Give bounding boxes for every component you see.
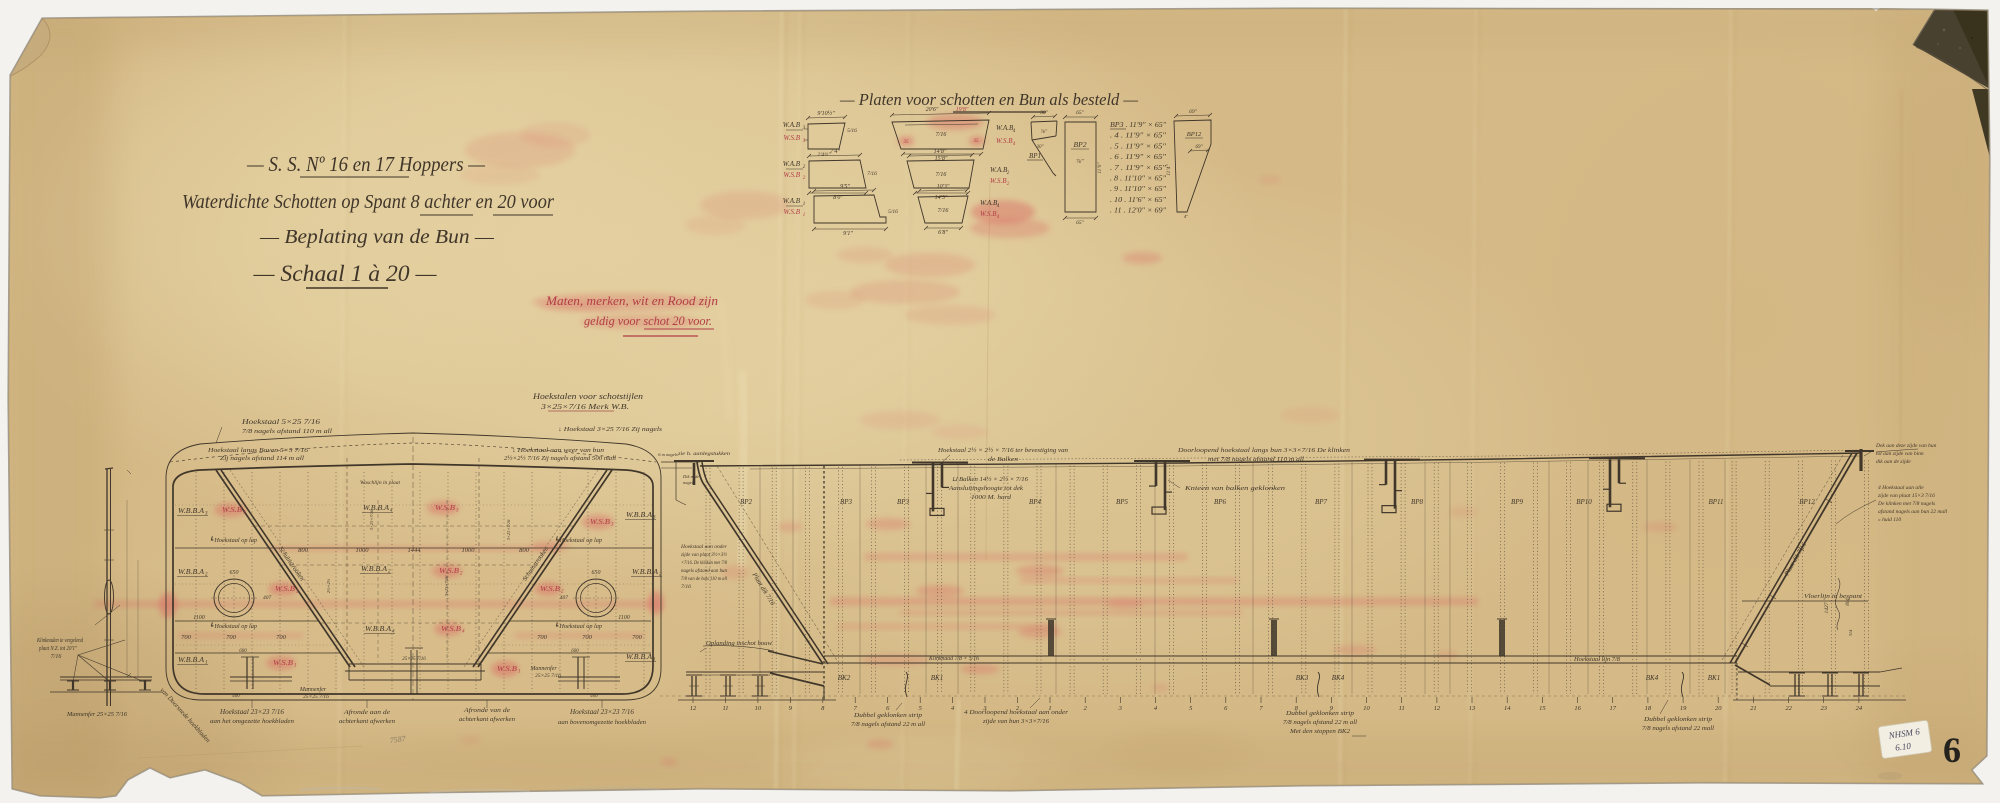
svg-text:afstand nagels aan bun 22 mall: afstand nagels aan bun 22 mall [1878,508,1948,515]
svg-text:zijde van plaat 15×3 7/16: zijde van plaat 15×3 7/16 [1877,493,1935,499]
svg-text:700: 700 [276,634,287,641]
svg-text:— Platen voor schotten en Bun: — Platen voor schotten en Bun als bestel… [839,90,1139,109]
svg-text:De klinken met 7/8 nagels: De klinken met 7/8 nagels [1877,501,1935,507]
svg-text:65": 65" [1076,220,1085,226]
svg-text:1000: 1000 [356,547,370,554]
svg-text:W.B.B.A: W.B.B.A [632,568,659,576]
svg-text:Met den stoppen BK2: Met den stoppen BK2 [1289,729,1350,735]
svg-text:BP7: BP7 [1315,498,1328,506]
svg-text:W.B.B.A: W.B.B.A [361,565,388,573]
svg-text:7/8 nagels afstand 22 mall: 7/8 nagels afstand 22 mall [1642,725,1714,732]
svg-text:3×25×7/16: 3×25×7/16 [444,575,449,597]
svg-text:314: 314 [1848,629,1853,637]
svg-text:1000: 1000 [462,547,476,554]
svg-text:⅞": ⅞" [1076,159,1084,165]
svg-text:W.S.B: W.S.B [996,137,1013,145]
svg-text:┗ Hoekstaal op lap: ┗ Hoekstaal op lap [209,536,257,544]
svg-text:700: 700 [632,634,643,641]
svg-text:2½×2½ 7/16 Zij nagels afstand: 2½×2½ 7/16 Zij nagels afstand 500 mall [504,455,616,462]
svg-text:35: 35 [974,139,980,144]
svg-text:5/16: 5/16 [847,128,857,134]
svg-text:geldig voor schot 20 voor.: geldig voor schot 20 voor. [584,313,712,328]
svg-text:1427: 1427 [1823,602,1830,613]
svg-text:. 8 . 11'10" × 65": . 8 . 11'10" × 65" [1110,174,1167,183]
svg-text:Dik m de: Dik m de [682,474,699,479]
svg-text:7/16: 7/16 [51,654,62,660]
svg-text:7/16: 7/16 [681,584,691,590]
svg-text:W.B.B.A: W.B.B.A [626,511,653,519]
svg-text:BP6: BP6 [1214,498,1227,506]
svg-text:4 Doorloopend hoekstaal aan on: 4 Doorloopend hoekstaal aan onder [964,709,1069,716]
svg-text:1100: 1100 [193,615,205,621]
svg-text:BP10: BP10 [1576,498,1592,506]
svg-text:⅞": ⅞" [1041,129,1048,135]
svg-text:11: 11 [1399,705,1405,712]
svg-text:1: 1 [803,213,806,218]
svg-text:20'6": 20'6" [926,107,939,113]
svg-text:W.B.B.A: W.B.B.A [178,507,205,515]
svg-text:Klinknaad 7/8 × 5/16: Klinknaad 7/8 × 5/16 [928,656,979,662]
svg-text:zijde van bun 3×3×7/16: zijde van bun 3×3×7/16 [982,719,1049,725]
svg-text:1: 1 [803,202,806,207]
svg-text:700: 700 [226,634,237,641]
svg-text:Vloerlijn in bespant: Vloerlijn in bespant [1804,593,1862,600]
svg-text:W.S.B: W.S.B [540,585,561,593]
svg-text:Mannenfer: Mannenfer [299,686,327,693]
svg-text:1: 1 [294,664,297,669]
svg-text:700: 700 [582,634,593,641]
svg-text:zie h. aanlegstukken: zie h. aanlegstukken [677,451,730,457]
svg-text:Afronde van de: Afronde van de [463,707,510,714]
svg-text:W.S.B: W.S.B [784,134,801,142]
svg-text:. 6 . 11'9" × 65": . 6 . 11'9" × 65" [1110,152,1167,161]
svg-text:7/8 nagels afstand 22 m all: 7/8 nagels afstand 22 m all [1283,719,1357,726]
svg-text:W.S.B: W.S.B [441,625,462,633]
svg-text:» huid 110: » huid 110 [1878,517,1901,523]
svg-text:20: 20 [1715,705,1722,712]
svg-text:Hoekstaal aan onder: Hoekstaal aan onder [680,544,728,550]
svg-text:10: 10 [755,705,762,712]
svg-text:9'10½": 9'10½" [817,110,835,117]
svg-text:BP8: BP8 [1411,498,1424,506]
svg-text:700: 700 [181,634,192,641]
svg-text:21: 21 [1750,705,1757,712]
svg-text:24: 24 [1856,705,1863,712]
svg-text:25×25 7/16: 25×25 7/16 [402,657,426,662]
svg-text:zijde van plaat 3½×3½: zijde van plaat 3½×3½ [680,551,727,558]
svg-text:Waschlijn in plaat: Waschlijn in plaat [360,480,400,486]
svg-text:14: 14 [1504,705,1511,712]
svg-text:┗ Hoekstaal op lap: ┗ Hoekstaal op lap [554,536,602,544]
svg-text:Dubbel geklonken strip: Dubbel geklonken strip [1643,716,1713,723]
svg-text:BP12: BP12 [1799,498,1815,506]
svg-text:W.A.B: W.A.B [996,124,1014,132]
svg-text:nagels afstand aan bun: nagels afstand aan bun [681,567,727,574]
svg-text:Waterdichte Schotten op Spant: Waterdichte Schotten op Spant 8 achter e… [182,191,554,213]
svg-text:12: 12 [690,705,697,712]
svg-text:Mannenfer 25×25 7/16: Mannenfer 25×25 7/16 [66,711,128,718]
svg-text:dik aan de zijde: dik aan de zijde [1876,459,1911,465]
svg-text:W.A.B: W.A.B [980,199,998,207]
svg-text:14'8": 14'8" [934,148,947,155]
svg-text:— Schaal 1 à 20 —: — Schaal 1 à 20 — [252,261,437,286]
svg-text:69": 69" [1189,109,1198,115]
svg-text:W.A.B: W.A.B [783,160,801,168]
svg-text:W.A.B: W.A.B [783,121,801,129]
svg-text:407: 407 [263,594,272,601]
svg-text:W.S.B: W.S.B [784,171,801,179]
svg-text:W.S.B: W.S.B [273,659,294,667]
svg-text:25×25 7/16: 25×25 7/16 [535,673,561,679]
svg-text:407: 407 [560,594,569,601]
svg-text:W.S.B: W.S.B [980,210,997,218]
svg-text:600: 600 [571,649,579,654]
svg-text:met 7/8 nagels afstand 110 m a: met 7/8 nagels afstand 110 m all [1208,456,1304,463]
svg-text:Maten, merken, wit en Rood zij: Maten, merken, wit en Rood zijn [545,293,718,308]
svg-text:19'8": 19'8" [956,107,969,113]
svg-text:achterkant afwerken: achterkant afwerken [339,718,395,725]
svg-text:BP5: BP5 [1116,498,1129,506]
svg-text:BK1: BK1 [931,674,943,682]
svg-text:W.S.B: W.S.B [497,665,518,673]
svg-text:Hoekstaal 2½ × 2½ × 7/16 ter b: Hoekstaal 2½ × 2½ × 7/16 ter bevestiging… [937,447,1068,454]
svg-text:BK1: BK1 [1708,674,1720,682]
svg-text:W.S.B: W.S.B [435,504,456,512]
svg-text:Hoekstaal 23×23 7/16: Hoekstaal 23×23 7/16 [569,708,635,716]
svg-text:11'4": 11'4" [1165,164,1172,176]
svg-text:W.S.B: W.S.B [590,518,611,526]
svg-text:9'5": 9'5" [840,184,850,190]
svg-text:BK3: BK3 [1296,674,1309,682]
svg-text:13: 13 [1469,705,1476,712]
svg-text:1: 1 [518,670,521,675]
svg-text:BP11: BP11 [1708,498,1723,506]
svg-text:. 7 . 11'9" × 65": . 7 . 11'9" × 65" [1110,163,1167,172]
svg-text:15'8": 15'8" [935,156,948,162]
svg-text:BP2: BP2 [740,498,753,506]
svg-text:7/8 van de huis 110 m all: 7/8 van de huis 110 m all [681,576,727,582]
svg-text:11: 11 [722,705,728,712]
svg-text:W.S.B: W.S.B [439,567,460,575]
svg-text:Knieen van balken geklonken: Knieen van balken geklonken [1184,485,1285,492]
svg-text:W.S.B: W.S.B [275,585,296,593]
svg-text:15: 15 [1539,705,1546,712]
svg-text:↓ Hoekstaal 3×25 7/16 Zij nag: ↓ Hoekstaal 3×25 7/16 Zij nagels [558,426,663,433]
svg-text:BP3 . 11'9" × 65": BP3 . 11'9" × 65" [1110,120,1167,129]
svg-text:2½×2½: 2½×2½ [326,578,331,593]
svg-text:1444: 1444 [408,547,422,554]
svg-text:↓ Hoekstaal aan weer van bun: ↓ Hoekstaal aan weer van bun [512,447,604,454]
svg-text:BP1: BP1 [1029,152,1041,160]
svg-text:. 11 . 12'0" × 69": . 11 . 12'0" × 69" [1110,206,1167,215]
svg-text:BP3: BP3 [840,498,853,506]
svg-text:6'8": 6'8" [938,230,948,236]
svg-text:700: 700 [537,634,548,641]
svg-text:W.S.B: W.S.B [784,208,801,216]
svg-text:de Balken: de Balken [988,456,1018,463]
svg-text:BP2: BP2 [1074,140,1087,149]
svg-text:— S. S. Nº 16 en 17 Hoppers —: — S. S. Nº 16 en 17 Hoppers — [246,152,485,176]
svg-text:┗ Hoekstaal op lap: ┗ Hoekstaal op lap [554,622,602,630]
svg-text:25×25 7/16: 25×25 7/16 [303,694,329,700]
svg-text:BP4: BP4 [1029,498,1042,506]
svg-text:. 5 . 11'9" × 65": . 5 . 11'9" × 65" [1110,141,1167,150]
svg-text:3×25×7/16: 3×25×7/16 [369,509,374,531]
svg-text:Mannenfer ·: Mannenfer · [529,665,560,672]
svg-text:— Beplating van de Bun —: — Beplating van de Bun — [259,226,494,248]
svg-text:4 Hoekstaal aan alle: 4 Hoekstaal aan alle [1878,484,1924,491]
svg-text:800: 800 [519,547,530,554]
svg-text:BP3: BP3 [897,498,910,506]
svg-text:30": 30" [1039,110,1049,116]
svg-text:W.B.B.A: W.B.B.A [363,504,390,512]
svg-text:Hoekstaal langs Boven 5×5 7/16: Hoekstaal langs Boven 5×5 7/16 [207,447,309,454]
svg-text:6: 6 [1943,730,1961,770]
svg-text:6 m nagels: 6 m nagels [658,452,678,457]
svg-text:BK4: BK4 [1646,674,1659,682]
svg-text:. 10 . 11'6" × 65": . 10 . 11'6" × 65" [1110,195,1167,204]
svg-text:plaat N.Z. tot 20'1": plaat N.Z. tot 20'1" [38,646,77,652]
svg-text:7'4": 7'4" [830,148,840,155]
svg-text:19: 19 [1680,705,1687,712]
svg-text:3: 3 [1118,705,1123,712]
svg-text:7/16: 7/16 [936,132,947,138]
svg-text:aan bovenomgezette hoekbladen: aan bovenomgezette hoekbladen [558,719,646,726]
svg-text:5/16: 5/16 [888,209,898,215]
svg-text:W.A.B: W.A.B [990,166,1008,174]
svg-text:1100: 1100 [618,615,630,621]
svg-text:800: 800 [298,547,309,554]
svg-text:Dubbel geklonken strip: Dubbel geklonken strip [853,712,923,719]
svg-text:7/16: 7/16 [938,208,949,214]
svg-text:1000 M. hard: 1000 M. hard [971,495,1012,501]
svg-text:9'1": 9'1" [843,231,853,237]
svg-text:W.A.B: W.A.B [783,197,801,205]
svg-text:18: 18 [1645,705,1652,712]
svg-text:400: 400 [590,694,598,699]
svg-text:achterkant afwerken: achterkant afwerken [459,716,515,723]
svg-text:Doorloopend hoekstaal langs bu: Doorloopend hoekstaal langs bun 3×3×7/16… [1177,447,1350,454]
svg-text:600: 600 [239,649,247,654]
svg-text:10'3": 10'3" [937,184,950,190]
svg-text:aan het omgezette hoekbladen: aan het omgezette hoekbladen [210,718,294,725]
svg-text:7/8 nagels afstand 110 m all: 7/8 nagels afstand 110 m all [242,428,332,435]
svg-text:23: 23 [1820,705,1827,712]
svg-text:4": 4" [1184,214,1188,219]
svg-text:BK2: BK2 [838,674,851,682]
svg-text:Dek aan deze zijde van bun: Dek aan deze zijde van bun [1875,443,1937,449]
svg-text:7/8 nagels afstand 22 m all: 7/8 nagels afstand 22 m all [851,721,925,728]
svg-text:7/16: 7/16 [867,171,877,177]
svg-text:804: 804 [1846,598,1851,606]
svg-text:Zij nagels afstand 114 m all: Zij nagels afstand 114 m all [220,455,304,462]
svg-text:69": 69" [1195,145,1203,150]
svg-text:Afronde aan de: Afronde aan de [343,709,390,716]
svg-text:35: 35 [904,140,910,145]
svg-text:11'0": 11'0" [1097,162,1103,174]
svg-text:650: 650 [592,570,601,576]
svg-text:. 4 . 11'9" × 65": . 4 . 11'9" × 65" [1110,131,1167,140]
svg-text:×7/16. De klinken met 7/8: ×7/16. De klinken met 7/8 [681,560,727,566]
svg-text:3×25×7/16 Merk W.B.: 3×25×7/16 Merk W.B. [540,402,629,411]
svg-text:12: 12 [1434,705,1441,712]
svg-text:650: 650 [230,570,239,576]
svg-text:. 9 . 11'10" × 65": . 9 . 11'10" × 65" [1110,184,1167,193]
svg-text:Dubbel geklonken strip: Dubbel geklonken strip [1285,710,1355,717]
svg-text:400: 400 [232,694,240,699]
svg-text:Hoekstaal 5×25 7/16: Hoekstaal 5×25 7/16 [241,418,321,426]
svg-text:30": 30" [1036,145,1044,150]
svg-text:Klinknaden te vergelend: Klinknaden te vergelend [36,638,84,644]
svg-text:BP9: BP9 [1511,498,1524,506]
svg-text:22: 22 [1785,705,1792,712]
svg-text:W.B.B.A: W.B.B.A [178,656,205,664]
svg-text:┗ Hoekstaal op lap: ┗ Hoekstaal op lap [209,622,257,630]
svg-text:tot aan zijde van binn: tot aan zijde van binn [1876,451,1924,457]
svg-text:BP12: BP12 [1187,131,1202,138]
svg-text:Hoekstaal lijn 7/8: Hoekstaal lijn 7/8 [1573,657,1620,663]
svg-text:Aansluitingshoogte tot dek: Aansluitingshoogte tot dek [948,486,1024,492]
svg-text:W.S.B: W.S.B [222,506,243,514]
svg-text:7/16: 7/16 [936,172,947,178]
svg-text:10: 10 [1363,705,1370,712]
svg-text:⊔ Balken 14½ × 2½ × 7/16: ⊔ Balken 14½ × 2½ × 7/16 [952,476,1029,483]
svg-text:Hoekstalen voor schotstijlen: Hoekstalen voor schotstijlen [532,392,643,401]
svg-text:BK4: BK4 [1332,674,1345,682]
svg-text:14'5": 14'5" [935,194,948,201]
svg-text:16: 16 [1574,705,1581,712]
svg-text:W.B.B.A: W.B.B.A [178,568,205,576]
svg-text:W.S.B: W.S.B [990,177,1007,185]
svg-text:65": 65" [1076,110,1085,116]
svg-text:W.B.B.A: W.B.B.A [365,625,392,633]
svg-text:17: 17 [1609,705,1616,712]
svg-text:W.B.B.A: W.B.B.A [626,653,653,661]
svg-text:Hoekstaal 23×23 7/16: Hoekstaal 23×23 7/16 [219,708,285,716]
svg-text:3×25×7/16: 3×25×7/16 [506,519,511,541]
